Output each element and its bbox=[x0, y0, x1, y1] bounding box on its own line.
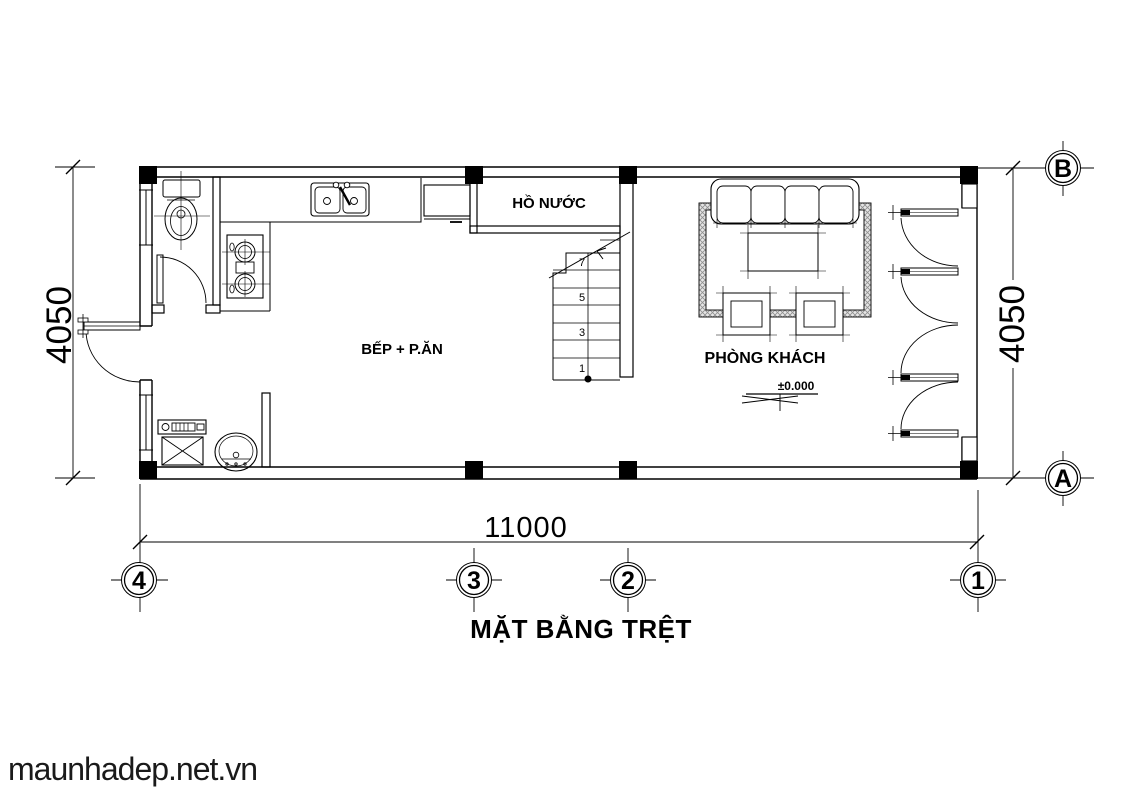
window-left-top bbox=[139, 190, 153, 245]
stair-step-3: 3 bbox=[579, 327, 585, 339]
washing-machine bbox=[158, 420, 206, 465]
stool-left bbox=[716, 286, 777, 342]
stool-right bbox=[789, 286, 850, 342]
drawing-title: MẶT BẰNG TRỆT bbox=[470, 614, 692, 644]
kitchen-sink bbox=[311, 182, 369, 216]
grid-bubble-B: B bbox=[1046, 151, 1081, 186]
side-door bbox=[78, 314, 140, 382]
gas-stove bbox=[222, 235, 270, 298]
entrance-door-leaf-4 bbox=[888, 426, 958, 441]
stair-step-1: 1 bbox=[579, 363, 585, 375]
sofa bbox=[711, 179, 859, 228]
grid-bubble-B-label: B bbox=[1054, 155, 1072, 183]
wc-door bbox=[157, 255, 206, 303]
refrigerator bbox=[424, 185, 470, 222]
grid-bubble-A-label: A bbox=[1054, 465, 1072, 493]
watermark: maunhadep.net.vn bbox=[8, 751, 257, 787]
room-label-living: PHÒNG KHÁCH bbox=[705, 348, 826, 367]
entrance-door bbox=[888, 184, 977, 461]
grid-bubble-3-label: 3 bbox=[467, 567, 481, 595]
room-label-water-tank: HỒ NƯỚC bbox=[512, 194, 586, 212]
stair-step-5: 5 bbox=[579, 292, 585, 304]
window-left-bottom bbox=[139, 395, 153, 450]
toilet bbox=[154, 171, 210, 250]
grid-bubble-2: 2 bbox=[611, 563, 646, 598]
grid-bubble-4-label: 4 bbox=[132, 567, 146, 595]
grid-bubble-3: 3 bbox=[457, 563, 492, 598]
grid-bubble-4: 4 bbox=[122, 563, 157, 598]
grid-bubble-1: 1 bbox=[961, 563, 996, 598]
stair-step-7: 7 bbox=[579, 257, 585, 269]
kitchen-counter bbox=[220, 178, 421, 311]
partition-wall bbox=[262, 393, 270, 467]
dimension-bottom bbox=[133, 484, 984, 612]
grid-bubble-2-label: 2 bbox=[621, 567, 635, 595]
entrance-door-leaf-1 bbox=[888, 205, 958, 220]
grid-bubble-A: A bbox=[1046, 461, 1081, 496]
entrance-door-leaf-2 bbox=[888, 264, 958, 279]
washbasin bbox=[215, 433, 257, 471]
floor-plan-page: HỒ NƯỚC 7 5 3 1 bbox=[0, 0, 1123, 793]
floor-plan-drawing: HỒ NƯỚC 7 5 3 1 bbox=[0, 0, 1123, 793]
level-marker: ±0.000 bbox=[742, 379, 818, 411]
dimension-bottom-text: 11000 bbox=[484, 512, 568, 544]
grid-bubble-1-label: 1 bbox=[971, 567, 985, 595]
dimension-left-text: 4050 bbox=[40, 286, 79, 364]
stair-step-numbers: 7 5 3 1 bbox=[579, 257, 585, 375]
room-label-kitchen: BẾP + P.ĂN bbox=[361, 341, 443, 358]
coffee-table bbox=[740, 225, 826, 279]
level-marker-text: ±0.000 bbox=[778, 379, 815, 393]
dimension-right-text: 4050 bbox=[993, 285, 1032, 363]
